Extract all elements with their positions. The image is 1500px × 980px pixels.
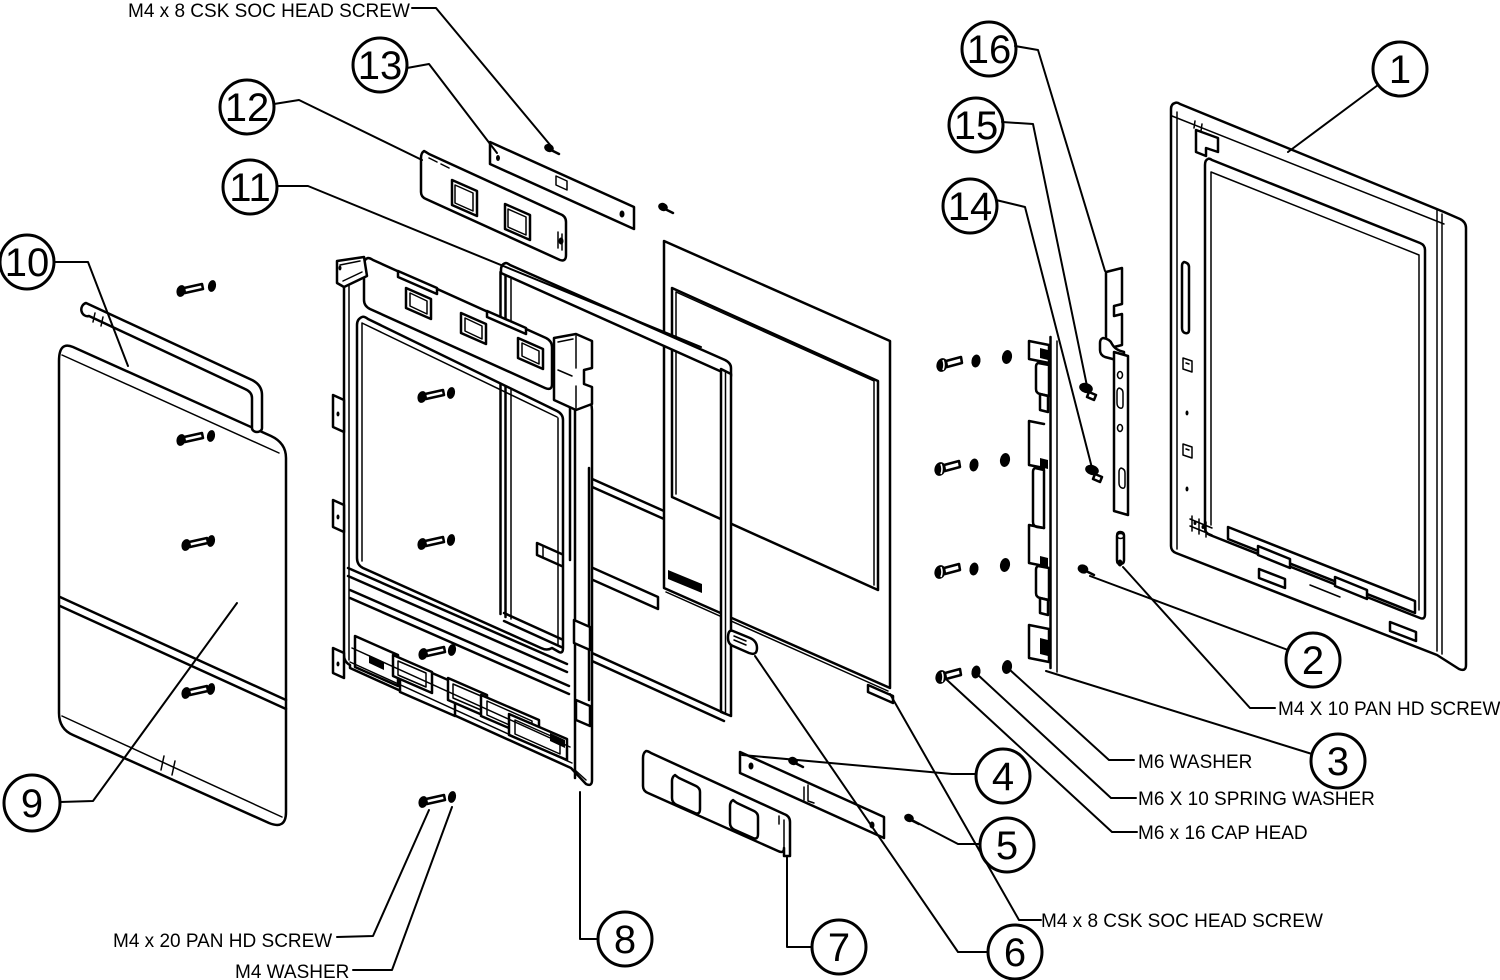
- svg-text:7: 7: [828, 926, 850, 970]
- svg-text:M6 X 10 SPRING WASHER: M6 X 10 SPRING WASHER: [1138, 789, 1375, 810]
- svg-text:4: 4: [992, 755, 1014, 799]
- svg-text:16: 16: [967, 28, 1012, 72]
- svg-text:12: 12: [225, 86, 270, 130]
- svg-text:M4 WASHER: M4 WASHER: [235, 962, 349, 980]
- svg-text:13: 13: [358, 44, 403, 88]
- svg-text:11: 11: [229, 166, 271, 210]
- svg-text:3: 3: [1327, 740, 1349, 784]
- svg-text:5: 5: [996, 824, 1018, 868]
- svg-text:2: 2: [1302, 639, 1324, 683]
- svg-text:1: 1: [1389, 48, 1411, 92]
- svg-text:14: 14: [948, 185, 993, 229]
- svg-text:M6 x 16 CAP HEAD: M6 x 16 CAP HEAD: [1138, 823, 1308, 844]
- svg-text:10: 10: [5, 241, 50, 285]
- svg-text:M4 x 20 PAN HD SCREW: M4 x 20 PAN HD SCREW: [113, 931, 332, 952]
- svg-text:6: 6: [1004, 931, 1026, 975]
- svg-text:9: 9: [21, 782, 43, 826]
- svg-text:8: 8: [614, 918, 636, 962]
- svg-text:M4 x 8 CSK SOC HEAD SCREW: M4 x 8 CSK SOC HEAD SCREW: [128, 1, 410, 22]
- svg-text:M6 WASHER: M6 WASHER: [1138, 752, 1252, 773]
- svg-text:M4 x 8 CSK SOC HEAD SCREW: M4 x 8 CSK SOC HEAD SCREW: [1041, 911, 1323, 932]
- svg-text:15: 15: [954, 104, 999, 148]
- svg-text:M4 X 10 PAN HD SCREW: M4 X 10 PAN HD SCREW: [1278, 699, 1500, 720]
